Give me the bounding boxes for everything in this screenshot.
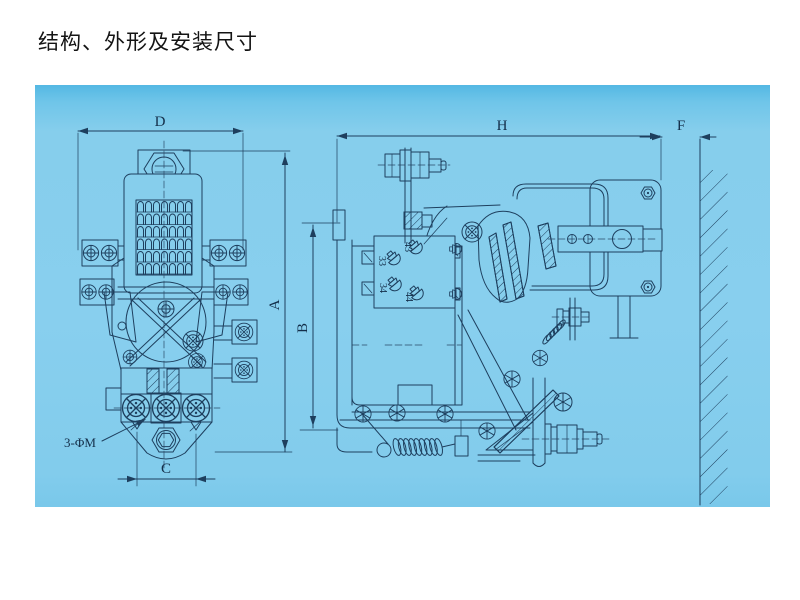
return-spring [392, 438, 444, 456]
svg-text:3-ΦM: 3-ΦM [64, 435, 96, 450]
dimension-F-label: F [677, 118, 685, 134]
dimension-B: B [295, 223, 340, 430]
top-bolt-assembly [378, 148, 450, 243]
right-terminal-pads [214, 320, 257, 382]
terminal-label-44: 44 [403, 292, 414, 302]
dimension-C-label: C [161, 461, 171, 477]
front-view: D A [64, 114, 292, 486]
terminal-label-43: 43 [402, 242, 413, 252]
back-plate [590, 180, 661, 338]
dimension-D-label: D [155, 114, 166, 130]
lower-terminal-block [106, 368, 220, 423]
slide: 结构、外形及安装尺寸 [0, 0, 800, 600]
spring-hook [377, 443, 391, 457]
bracket-bar [548, 226, 662, 252]
page-title: 结构、外形及安装尺寸 [38, 26, 258, 56]
technical-drawing: D A [35, 85, 770, 507]
base-hardware [355, 405, 468, 457]
terminal-label-33: 33 [376, 256, 387, 266]
terminal-label-34: 34 [377, 283, 388, 293]
drawing-canvas: D A [35, 85, 770, 507]
contact-mechanism [104, 282, 228, 371]
right-bracket [202, 240, 248, 305]
dimension-H: H [337, 118, 661, 222]
dimension-B-label: B [295, 323, 311, 333]
dimension-A-label: A [267, 299, 283, 310]
lower-bolt-assembly [522, 378, 612, 467]
armature-assembly [458, 298, 612, 467]
dimension-H-label: H [497, 118, 508, 134]
aux-terminal-block: 43 33 34 44 [362, 218, 462, 308]
side-view: 43 33 34 44 [295, 118, 728, 505]
dimension-F: F [640, 118, 716, 140]
left-bracket [80, 240, 124, 305]
mounting-wall-section [700, 139, 728, 505]
